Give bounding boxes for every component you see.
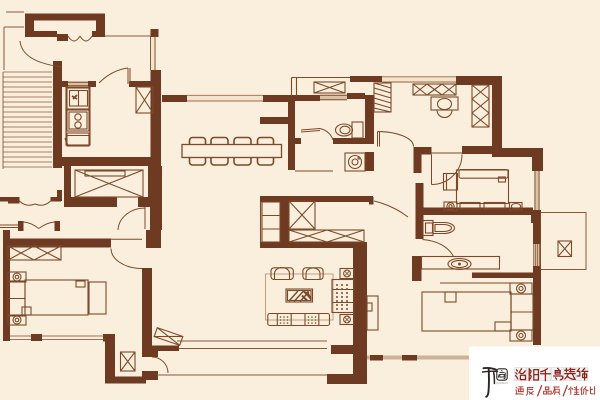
svg-text:QIANDAO: QIANDAO <box>496 381 508 385</box>
